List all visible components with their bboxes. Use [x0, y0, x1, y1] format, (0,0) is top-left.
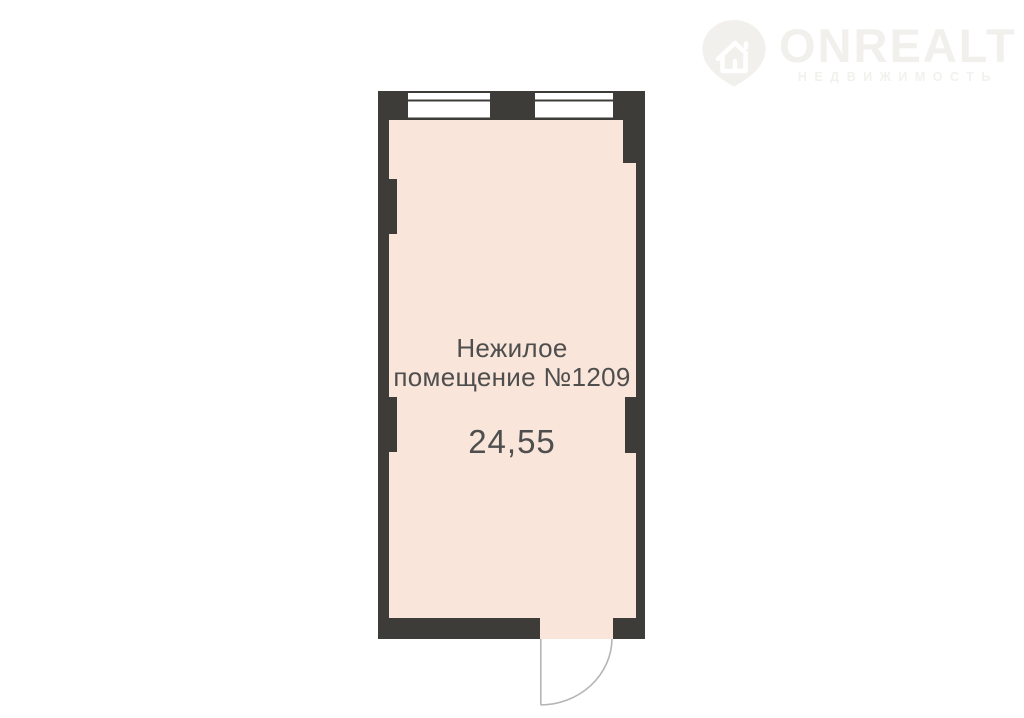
screenshot-root: ONREALT НЕДВИЖИМОСТЬ Нежилое помещение	[0, 0, 1024, 718]
room-area-value: 24,55	[378, 423, 646, 461]
window-2	[535, 93, 613, 118]
room-label-line1: Нежилое	[378, 334, 646, 363]
door-opening	[540, 610, 613, 639]
door-swing	[541, 639, 612, 705]
room-label: Нежилое помещение №1209	[378, 334, 646, 392]
door-arc	[541, 639, 612, 705]
window-1	[408, 93, 490, 118]
room-label-line2: помещение №1209	[378, 363, 646, 392]
